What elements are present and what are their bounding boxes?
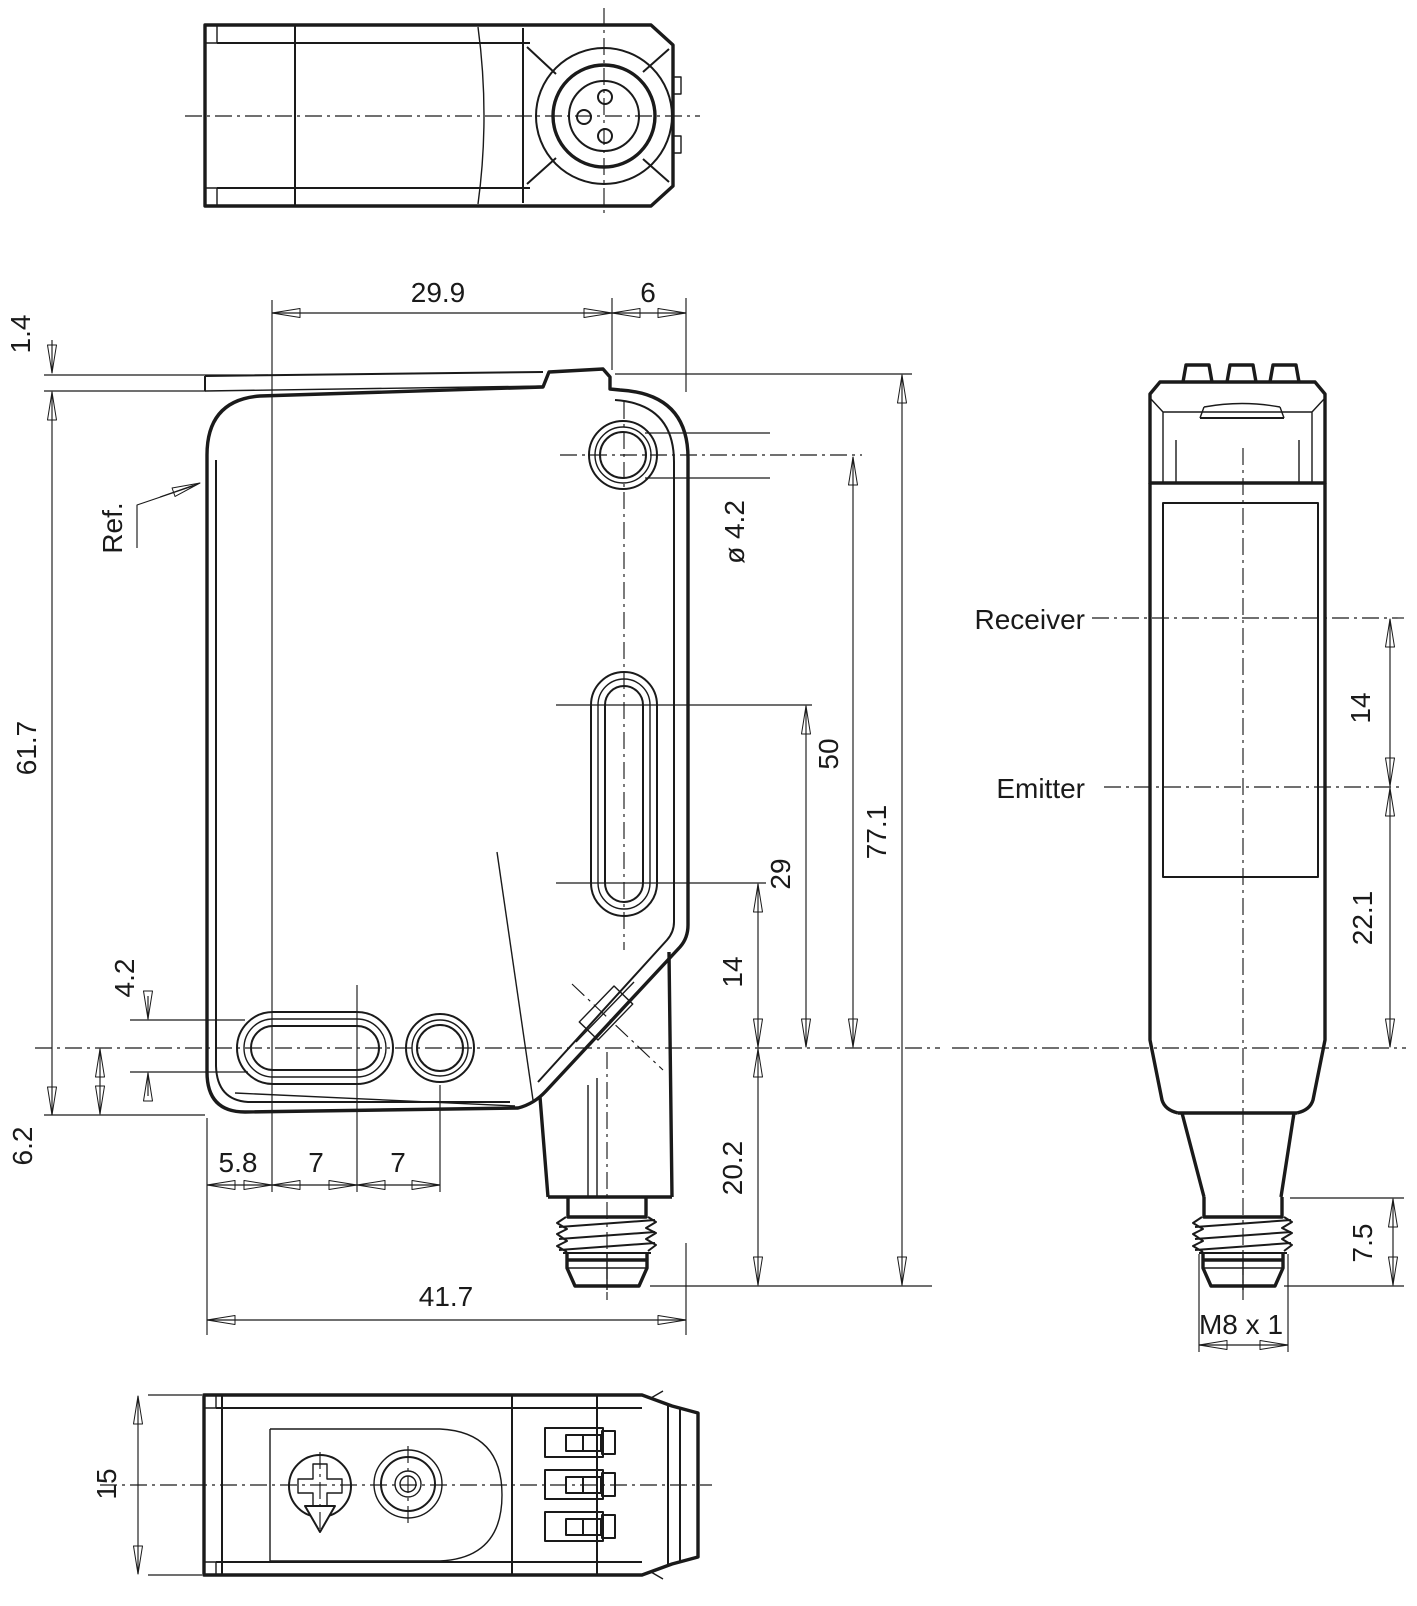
dim-hole-diameter: ø 4.2 [719,500,750,564]
top-view [185,8,700,218]
dim-top-width: 29.9 [411,277,466,308]
dim-foot-offset: 5.8 [219,1147,258,1178]
dim-center-to-tip: 20.2 [717,1141,748,1196]
sensor-dimensional-drawing: 29.9 6 1.4 Ref. 61.7 ø 4.2 50 29 14 77.1… [0,0,1417,1606]
dim-slot-bottom-to-center: 14 [717,956,748,987]
dim-pitch-b: 7 [390,1147,406,1178]
dim-slot-top-to-center: 29 [765,858,796,889]
dim-slot-width: 4.2 [109,959,140,998]
bottom-view: 15 [91,1391,712,1579]
dim-top-offset: 6 [640,277,656,308]
dim-body-height: 61.7 [11,721,42,776]
dim-hole-to-center: 50 [813,738,844,769]
dim-total-height: 77.1 [861,805,892,860]
front-view: 29.9 6 1.4 Ref. 61.7 ø 4.2 50 29 14 77.1… [5,277,940,1335]
ref-label: Ref. [97,502,128,553]
receiver-label: Receiver [975,604,1085,635]
sensor-dimensional-drawing-page: 29.9 6 1.4 Ref. 61.7 ø 4.2 50 29 14 77.1… [0,0,1417,1606]
dim-plate-thickness: 1.4 [5,315,36,354]
dim-housing-depth: 15 [91,1468,122,1499]
dim-center-to-bottom: 6.2 [7,1127,38,1166]
dim-body-width: 41.7 [419,1281,474,1312]
emitter-label: Emitter [996,773,1085,804]
thread-label: M8 x 1 [1199,1309,1283,1340]
dim-beam-gap: 14 [1345,692,1376,723]
side-view: Receiver Emitter 14 22.1 7.5 M8 x 1 [952,365,1406,1352]
dim-emitter-to-center: 22.1 [1347,891,1378,946]
dim-pitch-a: 7 [308,1147,324,1178]
dim-connector-length: 7.5 [1347,1224,1378,1263]
